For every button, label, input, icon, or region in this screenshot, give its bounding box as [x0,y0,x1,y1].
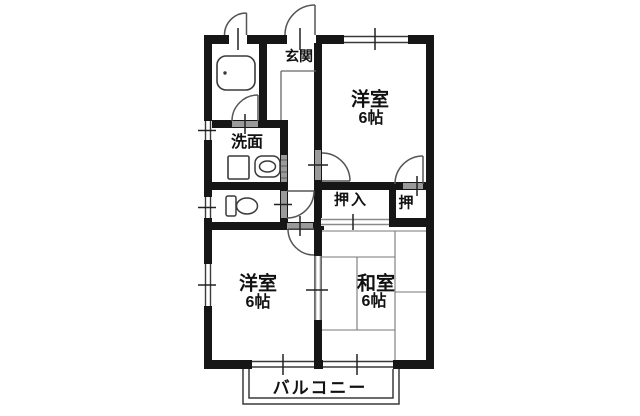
japanese-room-label: 和室 [357,275,395,294]
sink-icon [255,156,280,177]
door-oshi-closet [395,156,423,184]
washing-machine-icon [228,156,249,179]
oshiire-closet-label: 押入 [334,193,368,208]
floorplan-drawing [0,0,640,416]
bathtub-icon [217,56,255,90]
toilet-icon [226,196,258,216]
washroom-label: 洗面 [231,135,263,151]
genkan-label: 玄関 [285,49,313,63]
opening-ticks [198,28,417,375]
western-room-top-label: 洋室 [351,91,389,110]
japanese-room-size: 6帖 [362,294,387,310]
western-room-top-size: 6帖 [359,111,384,127]
oshi-closet-label: 押 [398,196,413,211]
floorplan-image: 玄関 洋室 6帖 洗面 押入 押 洋室 6帖 和室 6帖 バルコニー [0,0,640,416]
door-top-small [225,13,247,35]
balcony-label: バルコニー [273,380,368,397]
door-hall-to-room [288,229,314,255]
western-room-bottom-label: 洋室 [239,275,277,294]
window-glyphs [204,35,408,369]
western-room-bottom-size: 6帖 [246,295,271,311]
floor-lines [281,71,316,120]
door-upper-room [322,153,350,181]
